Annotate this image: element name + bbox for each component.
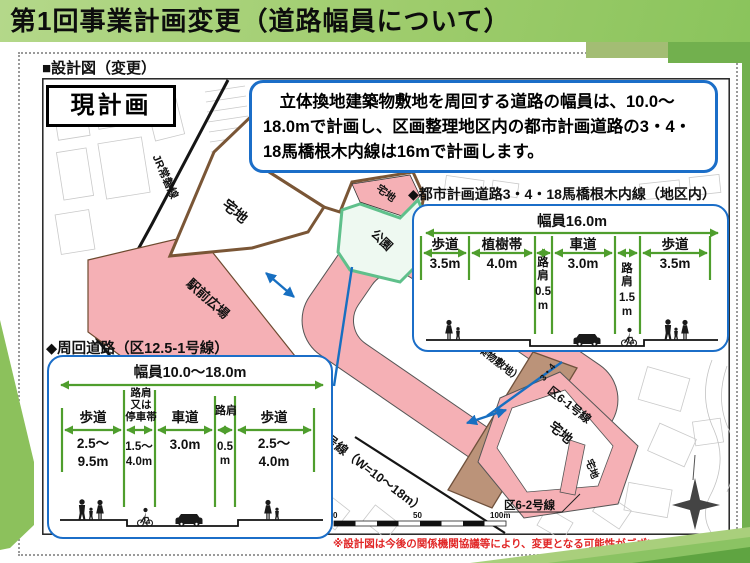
callout-line-1: 立体換地建築物敷地を周回する道路の幅員は、10.0～ xyxy=(263,90,704,115)
xsec-b-box: 幅員10.0～18.0m 路肩 又は 停車帯 路肩 歩道 車道 歩道 2.5～ … xyxy=(47,355,333,539)
shoulder-label: m xyxy=(622,306,632,318)
seg-name: 歩道 xyxy=(261,409,288,425)
seg-value: 4.0m xyxy=(487,256,518,271)
deco-left-wedge xyxy=(0,300,40,563)
current-plan-box: 現計画 xyxy=(46,85,176,127)
seg-value: 1.5～ xyxy=(125,441,153,453)
seg-value: 2.5～ xyxy=(77,436,110,451)
shoulder-label: 路 xyxy=(537,255,549,269)
slide-title: 第1回事業計画変更（道路幅員について） xyxy=(0,0,750,42)
xsec-a-figures xyxy=(445,319,689,347)
seg-value: 3.0m xyxy=(568,256,599,271)
seg-value: 3.5m xyxy=(660,256,691,271)
shoulder-label: 0.5 xyxy=(535,286,552,298)
seg-name: 車道 xyxy=(570,236,598,252)
section-label: ■設計図（変更） xyxy=(42,57,156,78)
seg-value: 0.5 xyxy=(217,441,234,453)
deco-right-strip xyxy=(742,42,750,542)
xsec-a-width-label: 幅員16.0m xyxy=(537,212,607,230)
scale-0: 0 xyxy=(333,511,338,520)
xsec-b-figures xyxy=(79,499,280,527)
seg-name: 植樹帯 xyxy=(481,236,523,252)
shoulder-label: m xyxy=(538,300,548,312)
xsec-b-width-label: 幅員10.0～18.0m xyxy=(134,363,247,381)
stop-label: 路肩 xyxy=(131,386,152,399)
seg-value: 3.0m xyxy=(170,437,201,452)
seg-name: 車道 xyxy=(172,409,199,425)
callout-line-2: 18.0mで計画し、区画整理地区内の都市計画道路の3・4・ xyxy=(263,115,704,140)
xsec-a-box: 幅員16.0m 歩道 植樹帯 車道 歩道 3.5m 4.0m 3.0m 3.5m… xyxy=(412,204,729,352)
xsec-a-ground xyxy=(426,340,718,346)
shoulder-label: 1.5 xyxy=(619,292,636,304)
seg-value: 9.5m xyxy=(78,454,109,469)
deco-bottom-bands xyxy=(380,520,750,563)
shoulder-label: 路 xyxy=(621,261,633,275)
callout-line-3: 18馬橋根木内線は16mで計画します。 xyxy=(263,140,704,165)
seg-value: 2.5～ xyxy=(258,436,291,451)
shoulder-label: 肩 xyxy=(537,268,549,282)
seg-value: 4.0m xyxy=(259,454,290,469)
seg-name: 歩道 xyxy=(80,409,107,425)
stop-label: 停車帯 xyxy=(125,410,157,423)
seg-name: 歩道 xyxy=(662,236,690,252)
slide-header: 第1回事業計画変更（道路幅員について） xyxy=(0,0,750,42)
seg-name: 歩道 xyxy=(432,236,459,252)
deco-block-olive xyxy=(586,42,668,58)
xsec-a-drawing: 幅員16.0m 歩道 植樹帯 車道 歩道 3.5m 4.0m 3.0m 3.5m… xyxy=(414,206,726,349)
xsec-b-labels: 路肩 又は 停車帯 路肩 歩道 車道 歩道 2.5～ 9.5m 1.5～ 4.0… xyxy=(77,386,291,469)
shoulder-label: 肩 xyxy=(621,274,633,288)
shoulder-label: 路肩 xyxy=(215,403,237,417)
stop-label: 又は xyxy=(130,399,152,411)
route-6-2-label: 区6-2号線 xyxy=(504,498,556,512)
seg-value: 3.5m xyxy=(430,256,461,271)
seg-value: 4.0m xyxy=(126,456,152,468)
callout-box: 立体換地建築物敷地を周回する道路の幅員は、10.0～ 18.0mで計画し、区画整… xyxy=(249,80,718,173)
deco-block-green xyxy=(668,42,750,63)
xsec-a-heading: ◆都市計画道路3・4・18馬橋根木内線（地区内） xyxy=(408,184,716,204)
seg-value: m xyxy=(220,455,230,467)
xsec-b-drawing: 幅員10.0～18.0m 路肩 又は 停車帯 路肩 歩道 車道 歩道 2.5～ … xyxy=(49,357,330,536)
